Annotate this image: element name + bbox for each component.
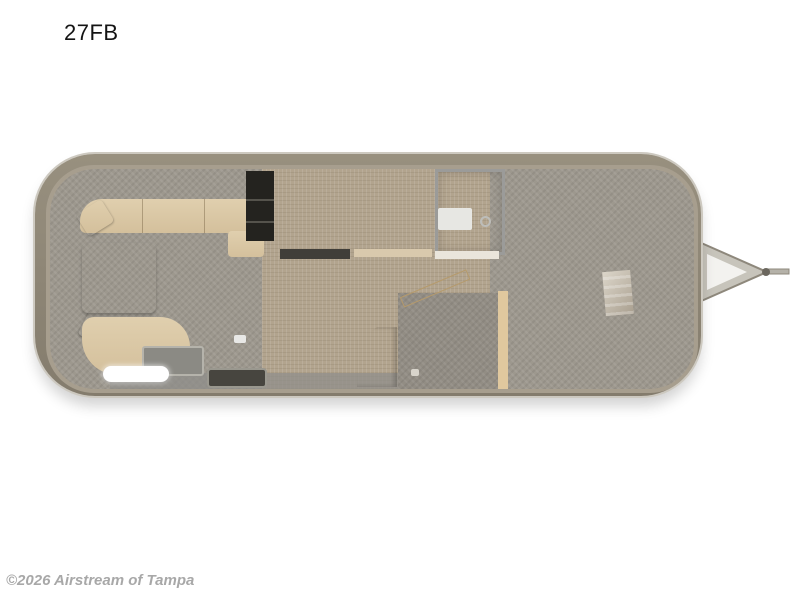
- rear-window-mid: [49, 238, 71, 300]
- door-hinge-right: [490, 293, 496, 304]
- kitchen-counter-trim: [268, 305, 284, 335]
- shower-threshold: [435, 251, 499, 259]
- pantry-cabinet: [274, 169, 346, 245]
- kitchen-faucet-icon: [234, 335, 246, 343]
- bed-pillow-cream-top: [628, 228, 665, 280]
- cooktop-stove: [307, 335, 355, 381]
- shower-drain-icon: [480, 216, 491, 227]
- queen-bed: [504, 225, 660, 351]
- lavatory-sink: [402, 347, 428, 373]
- kitchen-sink: [224, 309, 258, 341]
- nightstand-post-top: [574, 181, 588, 219]
- refrigerator: [246, 171, 274, 241]
- ottoman-table: [82, 243, 156, 313]
- lavatory-faucet-icon: [411, 369, 419, 376]
- utility-hatch: [207, 368, 267, 388]
- wardrobe-counter: [354, 249, 432, 257]
- watermark: ©2026 Airstream of Tampa: [6, 572, 194, 589]
- bed-pillow-silver: [602, 270, 634, 316]
- door-hinge-left: [395, 293, 401, 304]
- shower-bench: [438, 208, 472, 230]
- wardrobe-with-hangers: [352, 169, 428, 245]
- entry-step: [103, 366, 169, 382]
- roof-vent-bedroom-top: [543, 168, 595, 179]
- hitch-icon: [695, 232, 795, 312]
- pantry-counter: [280, 249, 350, 259]
- roof-vent-bedroom-bottom: [537, 372, 597, 383]
- stove-knobs: [309, 334, 351, 338]
- roof-vent-lounge-1: [109, 166, 165, 177]
- hitch-coupler: [762, 268, 770, 276]
- roof-vent-lounge-2: [173, 166, 227, 177]
- shower: [435, 169, 505, 255]
- bathroom-vanity: [474, 297, 498, 389]
- floorplan-page: 27FB: [0, 0, 800, 600]
- front-window-mid: [665, 238, 687, 300]
- floorplan-image: [0, 0, 800, 600]
- trailer-body: [35, 154, 701, 396]
- front-window-small: [663, 305, 688, 341]
